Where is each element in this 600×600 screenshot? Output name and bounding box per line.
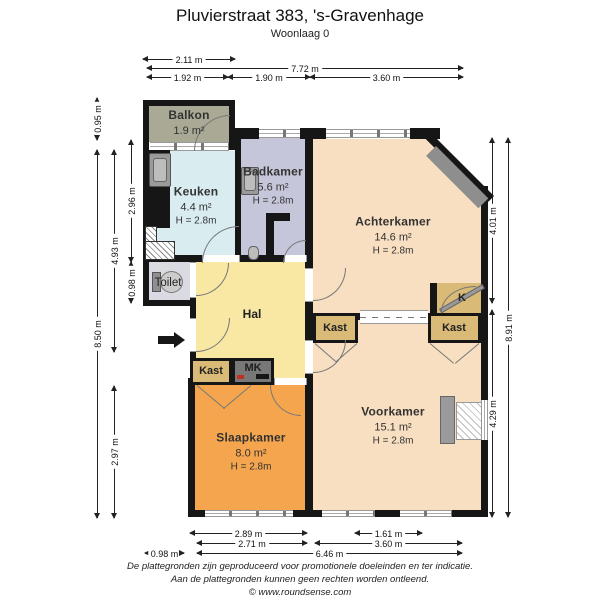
wall-hal-left-upper (190, 296, 196, 318)
wall-spine-c (305, 372, 313, 511)
wall-top-a (229, 128, 259, 139)
dim-top-total: 7.72 m (147, 68, 463, 69)
dim-top-badkamer: 1.90 m (228, 77, 310, 78)
radiator (440, 396, 455, 444)
wall-spine-a (305, 128, 313, 268)
dim-right-total: 8.91 m (508, 138, 509, 517)
closet-label-mk: MK (244, 362, 261, 374)
window-voorkamer-1 (322, 510, 375, 517)
meterkast-fuse-red (237, 375, 244, 379)
wall-toilet-bottom (143, 300, 196, 306)
closet-label-kast-voor: Kast (442, 322, 466, 334)
closet-label-kast-hal: Kast (199, 365, 223, 377)
door-opening-slaapkamer (274, 378, 307, 385)
dim-bottom-total: 6.46 m (197, 553, 462, 554)
door-opening-voorkamer (305, 340, 313, 374)
wall-balkon-top (143, 100, 235, 106)
window-slaapkamer (205, 510, 293, 517)
window-voorkamer-side (481, 400, 488, 440)
dim-left-slaapkamer: 2.97 m (114, 386, 115, 518)
closet-label-k: K (458, 292, 466, 304)
void-hatch-lower (145, 241, 175, 260)
wall-right (481, 186, 488, 517)
dim-top-keuken: 1.92 m (147, 77, 228, 78)
room-label-balkon: Balkon 1.9 m² (168, 108, 209, 138)
wall-top-c (410, 128, 440, 139)
dim-left-toilet: 0.98 m (131, 262, 132, 303)
floor-plan-page: { "page": { "title": "Pluvierstraat 383,… (0, 0, 600, 600)
niche-voorkamer (456, 402, 482, 440)
disclaimer-line-1: De plattegronden zijn geproduceerd voor … (0, 561, 600, 573)
wall-top-b (300, 128, 326, 139)
copyright-roundsense: © www.roundsense.com (0, 587, 600, 599)
dim-bottom-098: 0.98 m (145, 553, 184, 554)
wall-hal-top-b (238, 255, 284, 262)
wall-k-stub (430, 283, 437, 315)
room-label-badkamer: Badkamer 5.6 m² H = 2.8m (243, 165, 303, 208)
door-opening-achterkamer (305, 268, 313, 302)
meterkast-meter-black (256, 374, 269, 379)
dim-right-voorkamer: 4.29 m (492, 310, 493, 517)
dim-left-keuken: 2.96 m (131, 140, 132, 262)
closet-label-kast-achter: Kast (323, 322, 347, 334)
window-voorkamer-2 (400, 510, 452, 517)
wall-slaapkamer-left (188, 378, 195, 517)
page-title: Pluvierstraat 383, 's-Gravenhage (0, 6, 600, 26)
room-label-voorkamer: Voorkamer 15.1 m² H = 2.8m (361, 405, 425, 448)
dim-top-balkon: 2.11 m (143, 59, 235, 60)
dim-bottom-161: 1.61 m (355, 533, 422, 534)
entrance-arrow (158, 336, 174, 344)
dim-left-mid-upper: 4.93 m (114, 150, 115, 352)
ensuite-sliding-door (360, 310, 428, 324)
dim-bottom-voorkamer: 3.60 m (315, 543, 462, 544)
room-label-achterkamer: Achterkamer 14.6 m² H = 2.8m (355, 215, 431, 258)
dim-left-total: 8.50 m (97, 150, 98, 518)
wall-badkamer-l-vertical (266, 213, 274, 260)
bathroom-toilet (248, 246, 259, 260)
window-badkamer (259, 129, 300, 138)
disclaimer-line-2: Aan de plattegronden kunnen geen rechten… (0, 574, 600, 586)
entrance-arrow-head (174, 332, 185, 348)
room-label-hal: Hal (243, 307, 262, 321)
room-label-toilet: Toilet (155, 277, 182, 289)
kitchen-sink-basin (153, 158, 167, 182)
window-achterkamer (326, 129, 410, 138)
room-label-slaapkamer: Slaapkamer 8.0 m² H = 2.8m (216, 431, 285, 474)
dim-bottom-slaapkamer: 2.89 m (190, 533, 307, 534)
dim-right-achterkamer: 4.01 m (492, 138, 493, 303)
room-label-keuken: Keuken 4.4 m² H = 2.8m (174, 185, 219, 228)
page-subtitle: Woonlaag 0 (0, 28, 600, 40)
wall-spine-b (305, 300, 313, 340)
dim-left-balkon: 0.95 m (97, 98, 98, 140)
dim-top-achterkamer: 3.60 m (310, 77, 463, 78)
dim-bottom-271: 2.71 m (197, 543, 307, 544)
